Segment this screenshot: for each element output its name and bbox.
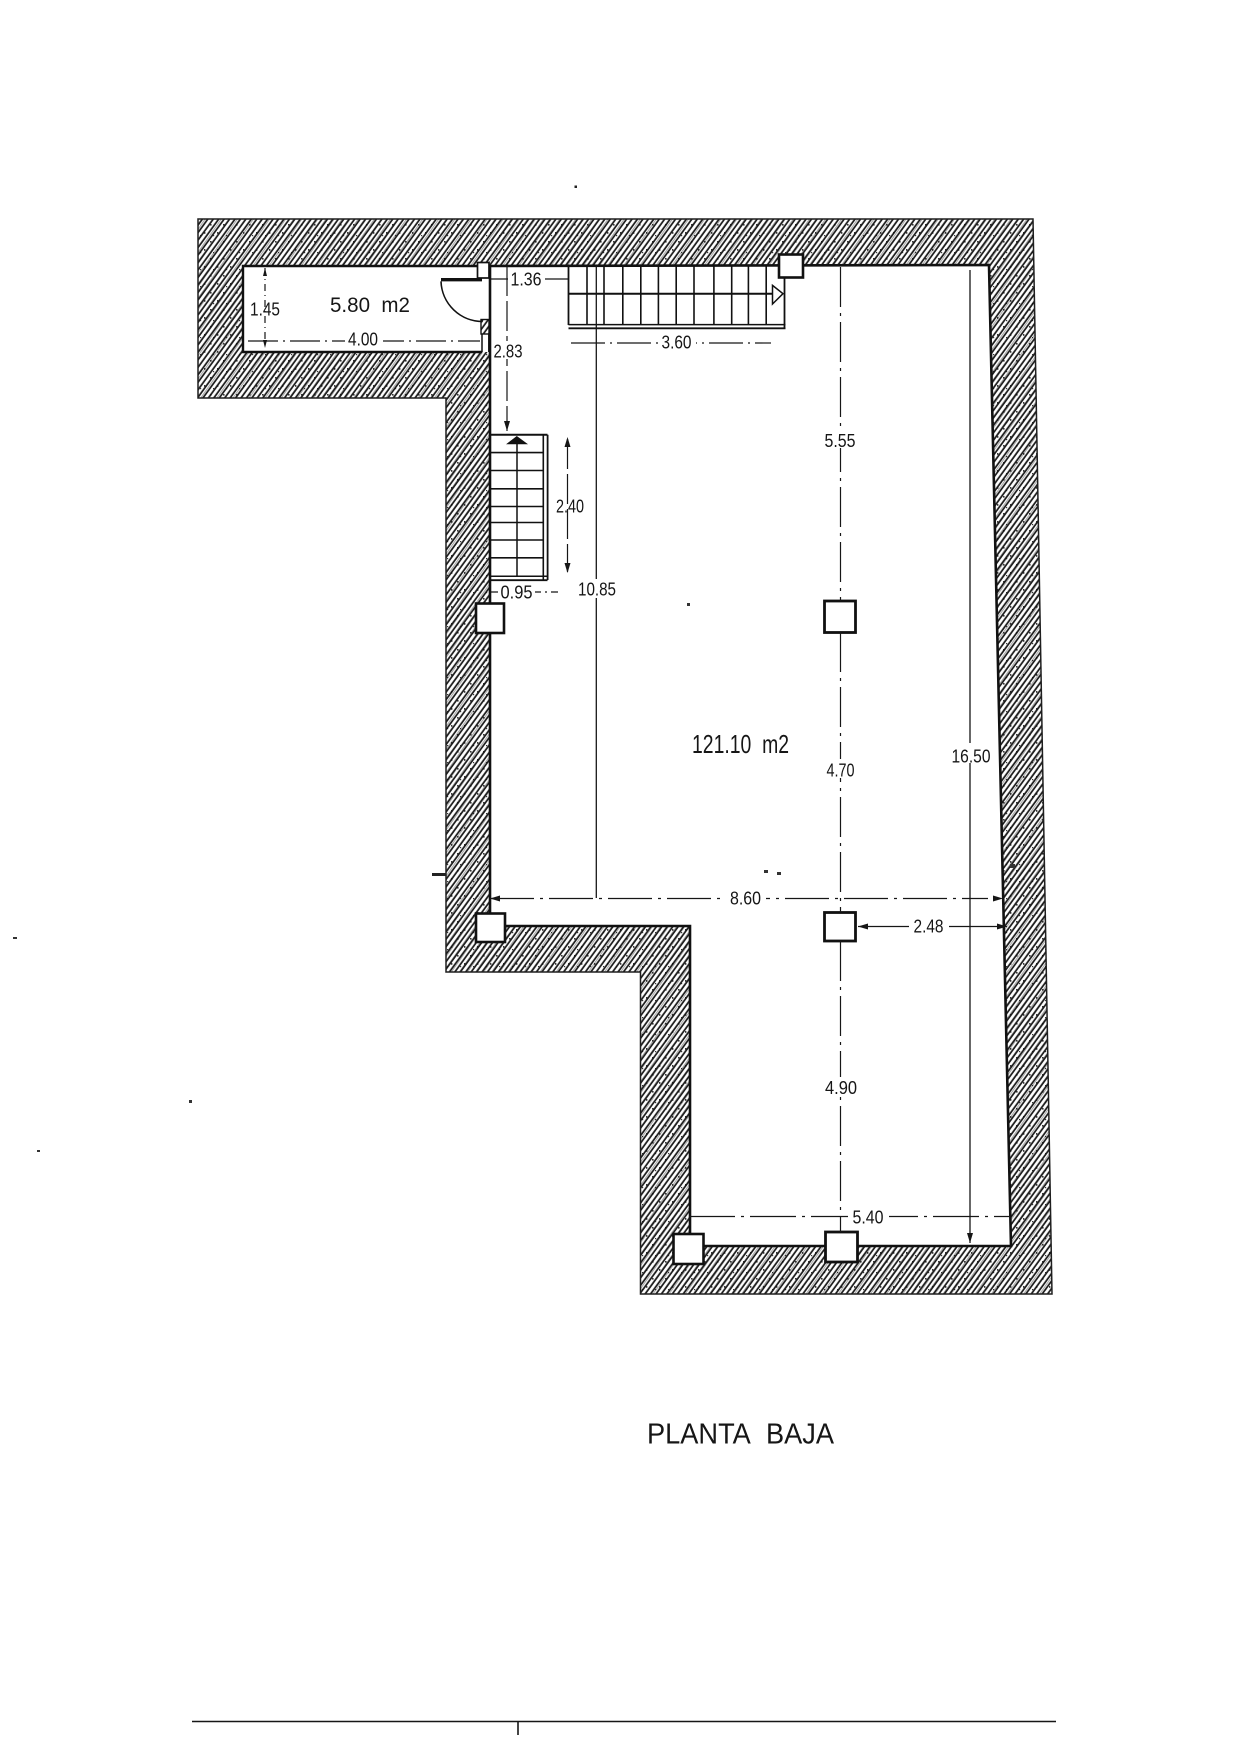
svg-text:2.48: 2.48 — [914, 917, 944, 937]
svg-text:4.70: 4.70 — [827, 761, 855, 781]
svg-text:2.83: 2.83 — [494, 342, 523, 362]
svg-text:5.55: 5.55 — [825, 431, 856, 451]
svg-text:121.10 m2: 121.10 m2 — [692, 729, 789, 759]
svg-text:0.95: 0.95 — [501, 583, 533, 603]
svg-text:1.45: 1.45 — [250, 300, 280, 320]
svg-text:5.80 m2: 5.80 m2 — [330, 294, 410, 317]
svg-text:2.40: 2.40 — [556, 497, 584, 517]
svg-text:5.40: 5.40 — [853, 1208, 884, 1228]
svg-text:1.36: 1.36 — [511, 270, 542, 290]
svg-text:10.85: 10.85 — [578, 580, 616, 600]
svg-text:3.60: 3.60 — [662, 333, 692, 353]
svg-text:PLANTA BAJA: PLANTA BAJA — [647, 1419, 835, 1451]
svg-text:4.90: 4.90 — [825, 1078, 857, 1098]
svg-text:4.00: 4.00 — [348, 330, 378, 350]
svg-text:8.60: 8.60 — [730, 889, 761, 909]
svg-text:16.50: 16.50 — [952, 747, 991, 767]
